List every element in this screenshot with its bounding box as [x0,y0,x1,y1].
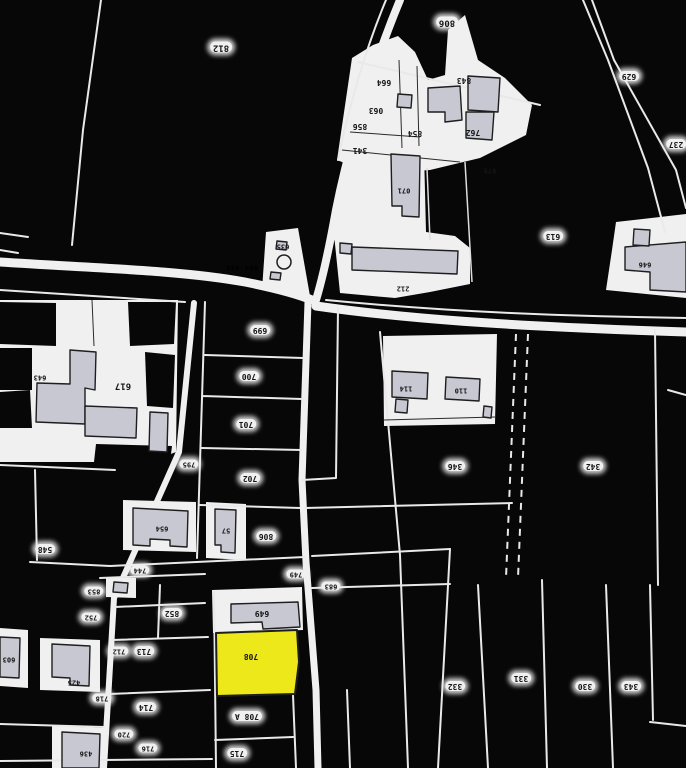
parcel-label-712: 712 [110,647,129,656]
parcel-label-714: 714 [136,702,156,712]
parcel-label-331: 331 [511,673,531,683]
parcel-label-343: 343 [621,681,641,691]
cadastral-map: 8128066292376640638568548437623418790716… [0,0,686,768]
parcel-label-341: 341 [353,146,367,154]
parcel-label-654: 654 [156,525,169,532]
parcel-label-702: 702 [240,473,260,483]
parcel-label-332: 332 [445,681,465,691]
parcel-label-718: 718 [93,694,112,703]
parcel-label-708-A: 708 A [232,711,262,721]
parcel-label-57: 57 [222,527,230,534]
parcel-label-649: 649 [255,609,269,617]
parcel-label-425: 425 [68,679,81,686]
parcel-label-330: 330 [575,681,595,691]
parcel-label-613: 613 [543,231,563,241]
parcel-label-114: 114 [400,385,413,392]
parcel-label-346: 346 [445,461,465,471]
parcel-label-699: 699 [250,325,270,335]
parcel-label-071: 071 [398,187,411,194]
parcel-label-715: 715 [227,748,247,758]
parcel-label-212: 212 [397,285,410,292]
parcel-label-683: 683 [322,582,341,591]
parcel-label-701: 701 [236,419,256,429]
parcel-label-812: 812 [210,42,232,53]
parcel-label-664: 664 [377,78,391,86]
parcel-label-237: 237 [666,139,686,149]
parcel-label-879: 879 [484,167,497,174]
parcel-label-063: 063 [369,106,383,114]
parcel-label-110: 110 [455,387,468,394]
parcel-label-752: 752 [82,613,101,622]
parcel-label-749: 749 [287,570,306,579]
parcel-label-806: 806 [256,531,276,541]
parcel-label-852: 852 [162,608,182,618]
parcel-label-853: 853 [85,587,104,596]
parcel-label-762: 762 [466,128,480,136]
parcel-label-708: 708 [244,652,258,660]
parcel-label-720: 720 [115,730,134,739]
parcel-label-744: 744 [131,566,150,575]
parcel-label-700: 700 [239,371,259,381]
parcel-label-436: 436 [80,750,93,757]
parcel-label-603: 603 [3,656,16,663]
parcel-label-646: 646 [639,261,652,268]
parcel-label-548: 548 [35,544,55,554]
parcel-labels: 8128066292376640638568548437623418790716… [0,0,686,768]
parcel-label-635: 635 [277,243,290,250]
parcel-label-806: 806 [436,17,458,28]
parcel-label-716: 716 [139,744,158,753]
parcel-label-864-448: 864-448 [225,264,258,271]
parcel-label-856: 856 [353,122,367,130]
parcel-label-843: 843 [457,76,471,84]
parcel-label-854: 854 [408,129,422,137]
parcel-label-713: 713 [134,646,154,656]
parcel-label-795: 795 [180,460,199,469]
parcel-label-629: 629 [619,71,639,81]
parcel-label-617: 617 [112,380,134,391]
parcel-label-643: 643 [34,374,47,381]
parcel-label-342: 342 [583,461,603,471]
